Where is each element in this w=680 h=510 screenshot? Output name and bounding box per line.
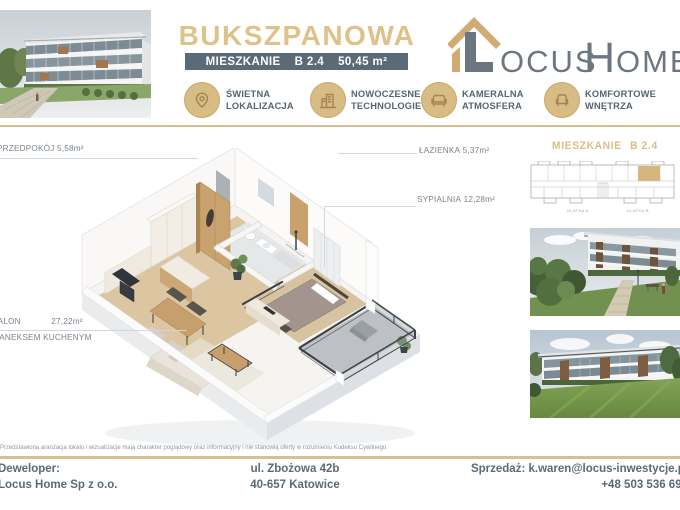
unit-number: B 2.4: [295, 56, 325, 68]
sidebar-heading-label: MIESZKANIE: [552, 140, 622, 152]
sofa-icon: [421, 82, 457, 118]
disclaimer-text: Przedstawiona aranżacja lokalu i wizuali…: [0, 444, 386, 451]
floor-schematic: KLATKA A KLATKA B: [528, 161, 678, 217]
logo-text-ocus: OCUS: [500, 44, 598, 76]
feature-line1: KAMERALNA: [462, 89, 524, 101]
header-building-photo: [0, 10, 151, 118]
project-title: BUKSZPANOWA: [168, 20, 426, 52]
address-line1: ul. Zbożowa 42b: [190, 463, 400, 475]
leader-line-livingroom: [0, 330, 186, 331]
leader-line-bathroom: [338, 153, 417, 154]
buildings-icon: [310, 82, 346, 118]
feature-line2: LOKALIZACJA: [226, 101, 294, 113]
room-label-bedroom: SYPIALNIA 12,28m²: [417, 195, 495, 204]
location-pin-icon: [184, 82, 220, 118]
feature-line2: ATMOSFERA: [462, 101, 524, 113]
armchair-icon: [544, 82, 580, 118]
feature-line2: WNĘTRZA: [585, 101, 656, 113]
leader-line-hall: [0, 158, 198, 159]
house-icon: [452, 22, 496, 72]
feature-technology: NOWOCZESNE TECHNOLOGIE: [310, 82, 425, 120]
feature-atmosphere: KAMERALNA ATMOSFERA: [421, 82, 531, 120]
subtitle-bar: MIESZKANIE B 2.4 50,45 m²: [185, 53, 408, 70]
sales-label: Sprzedaż:: [471, 463, 525, 475]
feature-line1: NOWOCZESNE: [351, 89, 421, 101]
sidebar-photo-lawn: [530, 330, 680, 418]
klatka-a-label: KLATKA A: [567, 208, 589, 213]
highlighted-unit: [638, 166, 660, 181]
room-label-livingroom-line2: Z ANEKSEM KUCHENYM: [0, 333, 92, 342]
logo-text: OCUS H OME: [500, 34, 680, 76]
developer-label: Deweloper:: [0, 463, 60, 475]
leader-line-bedroom-v: [324, 206, 325, 268]
feature-line1: ŚWIETNA: [226, 89, 294, 101]
room-label-hall: PRZEDPOKÓJ 5,58m²: [0, 144, 84, 153]
address-line2: 40-657 Katowice: [190, 479, 400, 491]
klatka-b-label: KLATKA B: [627, 208, 649, 213]
logo-text-h: H: [584, 34, 615, 76]
floorplan-3d-render: [60, 148, 440, 448]
unit-area: 50,45 m²: [338, 56, 387, 68]
sales-email: k.waren@locus-inwestycje.pl: [529, 463, 680, 475]
sales-phone: +48 503 536 699: [601, 479, 680, 491]
feature-line1: KOMFORTOWE: [585, 89, 656, 101]
leader-line-bedroom-h: [324, 206, 416, 207]
header-divider-line: [0, 125, 680, 127]
sales-contact: Sprzedaż: k.waren@locus-inwestycje.pl: [471, 463, 680, 475]
sidebar-photo-garden: [530, 228, 680, 316]
sidebar-heading-unit: B 2.4: [630, 140, 658, 152]
logo-text-ome: OME: [616, 44, 680, 76]
feature-line2: TECHNOLOGIE: [351, 101, 421, 113]
subtitle-label: MIESZKANIE: [206, 56, 281, 68]
feature-interiors: KOMFORTOWE WNĘTRZA: [544, 82, 659, 120]
footer-divider-line: [0, 456, 680, 459]
developer-name: Locus Home Sp z o.o.: [0, 479, 117, 491]
feature-location: ŚWIETNA LOKALIZACJA: [184, 82, 314, 120]
room-label-livingroom: SALON 27,22m²: [0, 317, 83, 326]
locus-home-logo: OCUS H OME: [448, 16, 680, 76]
sidebar-heading: MIESZKANIEB 2.4: [536, 140, 674, 152]
room-label-bathroom: ŁAZIENKA 5,37m²: [419, 146, 489, 155]
building: [24, 32, 151, 88]
flyer: BUKSZPANOWA MIESZKANIE B 2.4 50,45 m² OC…: [0, 0, 680, 510]
